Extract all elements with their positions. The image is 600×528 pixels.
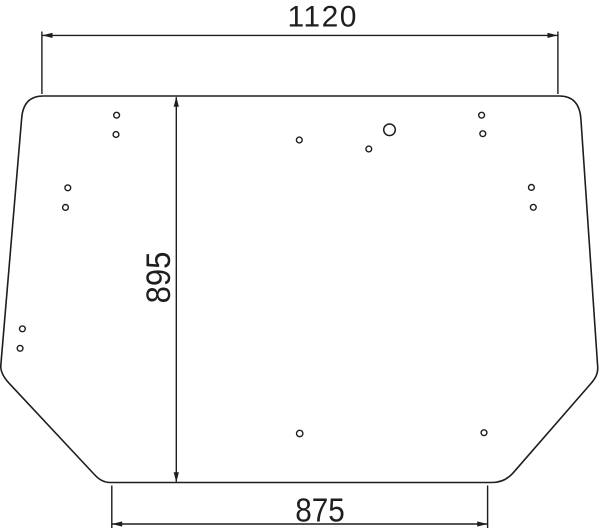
svg-text:875: 875: [295, 492, 345, 528]
svg-text:1120: 1120: [287, 0, 358, 33]
svg-text:895: 895: [140, 252, 178, 304]
